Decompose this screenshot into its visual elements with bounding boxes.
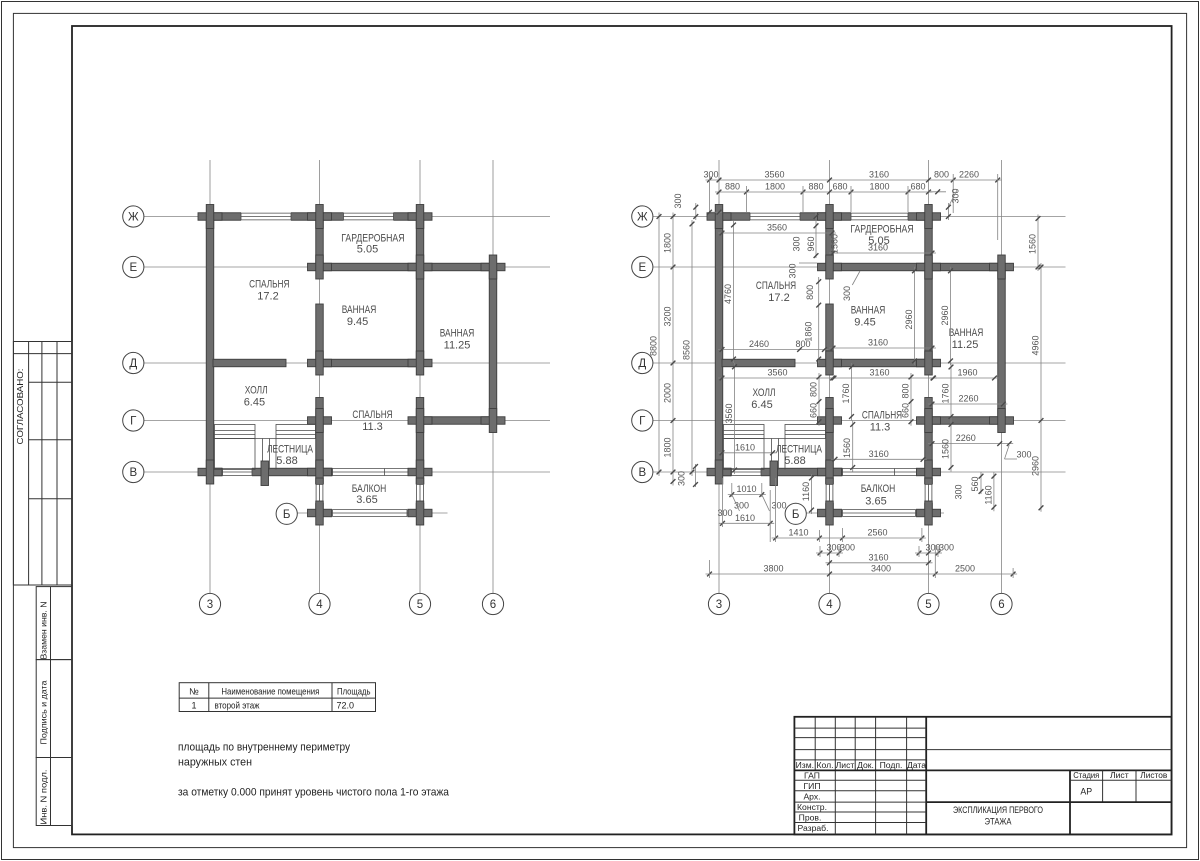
svg-text:3560: 3560 (724, 403, 734, 423)
svg-text:Арх.: Арх. (803, 792, 820, 802)
svg-text:ГАП: ГАП (804, 770, 820, 780)
svg-text:9.45: 9.45 (854, 316, 875, 328)
svg-text:ХОЛЛ: ХОЛЛ (753, 387, 776, 399)
svg-text:300: 300 (771, 501, 786, 511)
svg-text:Изм.: Изм. (796, 760, 814, 770)
svg-text:680: 680 (832, 182, 847, 192)
svg-text:17.2: 17.2 (768, 292, 789, 304)
svg-text:Наименование помещения: Наименование помещения (221, 687, 319, 697)
svg-text:1960: 1960 (957, 368, 977, 378)
svg-text:Подпись и дата: Подпись и дата (38, 680, 48, 744)
svg-text:11.3: 11.3 (870, 421, 891, 433)
svg-text:2000: 2000 (663, 383, 673, 403)
svg-text:5: 5 (417, 599, 423, 611)
svg-text:Г: Г (130, 416, 137, 428)
svg-text:800: 800 (809, 382, 819, 397)
svg-text:ГАРДЕРОБНАЯ: ГАРДЕРОБНАЯ (341, 232, 404, 244)
svg-text:ВАННАЯ: ВАННАЯ (342, 304, 377, 316)
svg-text:11.3: 11.3 (362, 421, 383, 433)
svg-text:1610: 1610 (735, 442, 755, 452)
svg-text:2260: 2260 (959, 170, 979, 180)
svg-text:ЛЕСТНИЦА: ЛЕСТНИЦА (776, 443, 822, 455)
svg-text:2960: 2960 (1031, 456, 1041, 476)
svg-text:2500: 2500 (955, 564, 975, 574)
svg-text:ХОЛЛ: ХОЛЛ (245, 385, 268, 397)
svg-text:1: 1 (191, 701, 196, 711)
svg-text:11.25: 11.25 (444, 340, 471, 352)
svg-text:11.25: 11.25 (952, 339, 979, 351)
svg-text:2960: 2960 (904, 309, 914, 329)
svg-text:ЭКСПЛИКАЦИЯ ПЕРВОГО: ЭКСПЛИКАЦИЯ ПЕРВОГО (953, 805, 1043, 815)
svg-text:3160: 3160 (869, 368, 889, 378)
svg-text:300: 300 (703, 170, 718, 180)
svg-text:СОГЛАСОВАНО:: СОГЛАСОВАНО: (15, 369, 25, 445)
svg-text:800: 800 (901, 383, 911, 398)
svg-text:680: 680 (910, 182, 925, 192)
svg-text:Б: Б (283, 509, 291, 521)
svg-text:3160: 3160 (869, 449, 889, 459)
svg-text:300: 300 (939, 543, 954, 553)
svg-text:Взамен инв. N: Взамен инв. N (38, 602, 48, 660)
svg-text:АР: АР (1080, 787, 1092, 797)
svg-text:560: 560 (970, 476, 980, 491)
svg-text:660: 660 (901, 403, 911, 418)
svg-text:300: 300 (734, 501, 749, 511)
svg-text:В: В (129, 467, 137, 479)
svg-text:1160: 1160 (801, 482, 811, 501)
svg-text:1560: 1560 (842, 438, 852, 458)
svg-text:В: В (638, 467, 646, 479)
svg-text:800: 800 (795, 339, 810, 349)
svg-text:1410: 1410 (788, 528, 808, 538)
svg-text:1010: 1010 (736, 484, 756, 494)
svg-text:1800: 1800 (869, 182, 889, 192)
svg-text:6.45: 6.45 (244, 397, 265, 409)
svg-text:300: 300 (673, 193, 683, 208)
svg-text:5.88: 5.88 (276, 455, 297, 467)
svg-text:ВАННАЯ: ВАННАЯ (949, 327, 984, 339)
svg-text:300: 300 (792, 236, 802, 251)
svg-text:ГИП: ГИП (803, 781, 820, 791)
svg-text:площадь по внутреннему перимет: площадь по внутреннему периметру (178, 742, 350, 754)
svg-text:3160: 3160 (868, 243, 888, 253)
svg-text:5: 5 (925, 599, 931, 611)
svg-text:Дата: Дата (907, 760, 926, 770)
svg-text:СПАЛЬНЯ: СПАЛЬНЯ (756, 280, 796, 292)
svg-text:ЭТАЖА: ЭТАЖА (985, 817, 1012, 827)
svg-text:1800: 1800 (765, 182, 785, 192)
svg-text:3200: 3200 (663, 306, 673, 326)
svg-text:4: 4 (826, 599, 833, 611)
svg-text:1560: 1560 (1028, 234, 1038, 254)
svg-text:300: 300 (677, 471, 687, 486)
svg-text:880: 880 (725, 182, 740, 192)
svg-text:800: 800 (805, 285, 815, 300)
svg-text:Лист: Лист (836, 760, 855, 770)
svg-text:1760: 1760 (941, 383, 951, 403)
svg-text:6: 6 (490, 599, 496, 611)
svg-text:1800: 1800 (663, 233, 673, 253)
svg-text:2460: 2460 (749, 339, 769, 349)
svg-text:Е: Е (129, 262, 137, 274)
svg-text:3: 3 (207, 599, 213, 611)
svg-text:Лист: Лист (1110, 770, 1129, 780)
svg-text:наружных стен: наружных стен (178, 757, 252, 769)
svg-text:Д: Д (129, 358, 137, 370)
svg-text:2560: 2560 (867, 528, 887, 538)
svg-text:1160: 1160 (983, 485, 993, 504)
svg-text:2260: 2260 (956, 433, 976, 443)
svg-text:1560: 1560 (941, 439, 951, 459)
svg-text:3560: 3560 (764, 170, 784, 180)
svg-text:ЛЕСТНИЦА: ЛЕСТНИЦА (267, 443, 313, 455)
svg-text:3800: 3800 (763, 564, 783, 574)
svg-text:300: 300 (717, 508, 732, 518)
svg-text:800: 800 (934, 170, 949, 180)
svg-text:Ж: Ж (637, 212, 648, 224)
svg-text:Б: Б (792, 509, 800, 521)
svg-text:№: № (189, 687, 199, 697)
svg-text:300: 300 (951, 188, 961, 203)
svg-text:Д: Д (638, 358, 646, 370)
svg-text:2960: 2960 (940, 305, 950, 325)
svg-text:3160: 3160 (868, 338, 888, 348)
svg-text:3560: 3560 (767, 368, 787, 378)
svg-text:1610: 1610 (735, 513, 755, 523)
svg-text:4960: 4960 (1031, 335, 1041, 355)
svg-text:Констр.: Констр. (797, 802, 827, 812)
svg-text:880: 880 (808, 182, 823, 192)
svg-text:300: 300 (954, 484, 964, 499)
svg-text:СПАЛЬНЯ: СПАЛЬНЯ (352, 409, 392, 421)
svg-text:Инв. N подл.: Инв. N подл. (38, 770, 48, 825)
svg-text:5.05: 5.05 (357, 244, 378, 256)
svg-text:СПАЛЬНЯ: СПАЛЬНЯ (862, 409, 902, 421)
svg-text:Разраб.: Разраб. (798, 823, 829, 833)
svg-text:Док.: Док. (857, 760, 874, 770)
svg-text:Площадь: Площадь (337, 687, 371, 697)
svg-text:17.2: 17.2 (257, 291, 278, 303)
svg-text:300: 300 (788, 263, 798, 278)
svg-text:ГАРДЕРОБНАЯ: ГАРДЕРОБНАЯ (850, 223, 913, 235)
svg-text:за отметку 0.000 принят уровен: за отметку 0.000 принят уровень чистого … (178, 787, 450, 799)
svg-text:Листов: Листов (1140, 770, 1167, 780)
svg-text:1760: 1760 (841, 383, 851, 403)
svg-text:3560: 3560 (767, 223, 787, 233)
svg-text:6.45: 6.45 (751, 399, 772, 411)
svg-text:4: 4 (316, 599, 323, 611)
svg-text:3160: 3160 (869, 170, 889, 180)
svg-text:9.45: 9.45 (347, 316, 368, 328)
svg-text:300: 300 (1016, 450, 1031, 460)
svg-text:660: 660 (809, 403, 819, 418)
svg-text:Кол.: Кол. (817, 760, 834, 770)
svg-text:960: 960 (806, 236, 816, 251)
svg-text:3400: 3400 (871, 564, 891, 574)
svg-text:Г: Г (639, 416, 646, 428)
svg-text:Подп.: Подп. (880, 760, 903, 770)
svg-text:72.0: 72.0 (337, 701, 355, 711)
svg-text:6: 6 (998, 599, 1004, 611)
svg-text:второй этаж: второй этаж (215, 701, 260, 711)
svg-text:Ж: Ж (128, 212, 139, 224)
svg-text:300: 300 (842, 286, 852, 301)
svg-text:Стадия: Стадия (1073, 770, 1099, 780)
svg-text:5.88: 5.88 (784, 455, 805, 467)
svg-text:Е: Е (638, 262, 646, 274)
svg-text:8560: 8560 (682, 340, 692, 360)
svg-text:Пров.: Пров. (799, 812, 822, 822)
svg-text:ВАННАЯ: ВАННАЯ (851, 304, 886, 316)
svg-text:3.65: 3.65 (865, 495, 886, 507)
svg-text:8800: 8800 (649, 336, 659, 356)
svg-text:3160: 3160 (868, 552, 888, 562)
svg-text:300: 300 (840, 543, 855, 553)
svg-text:3: 3 (716, 599, 722, 611)
svg-text:1560: 1560 (830, 234, 840, 254)
svg-text:1800: 1800 (663, 437, 673, 457)
svg-text:БАЛКОН: БАЛКОН (861, 483, 896, 495)
svg-text:3.65: 3.65 (356, 494, 377, 506)
svg-text:СПАЛЬНЯ: СПАЛЬНЯ (249, 279, 289, 291)
svg-text:ВАННАЯ: ВАННАЯ (440, 328, 475, 340)
svg-text:4760: 4760 (723, 284, 733, 304)
svg-text:2260: 2260 (958, 394, 978, 404)
